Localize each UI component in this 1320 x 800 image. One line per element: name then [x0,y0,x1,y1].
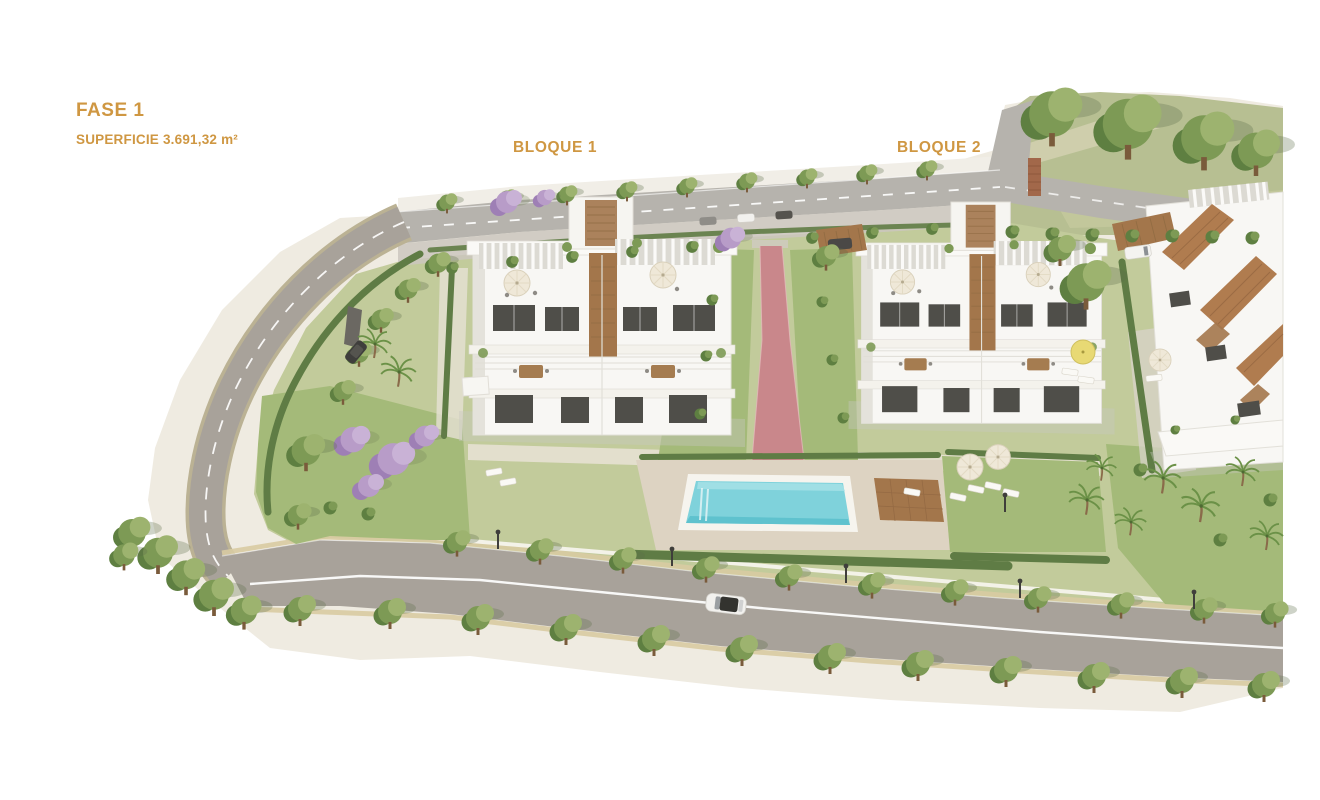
phase-label-group: FASE 1 SUPERFICIE 3.691,32 m² [76,100,238,147]
phase-area: SUPERFICIE 3.691,32 m² [76,132,238,147]
garden-pergola [462,376,489,396]
swimming-pool [678,474,858,532]
bloque-1-label: BLOQUE 1 [513,139,597,157]
render-canvas: FASE 1 SUPERFICIE 3.691,32 m² BLOQUE 1 B… [0,0,1320,800]
bloque-2-label: BLOQUE 2 [897,139,981,157]
phase-title: FASE 1 [76,100,238,122]
wooden-deck [874,478,944,522]
pool-area [636,456,1106,552]
brick-tower [1028,158,1041,196]
